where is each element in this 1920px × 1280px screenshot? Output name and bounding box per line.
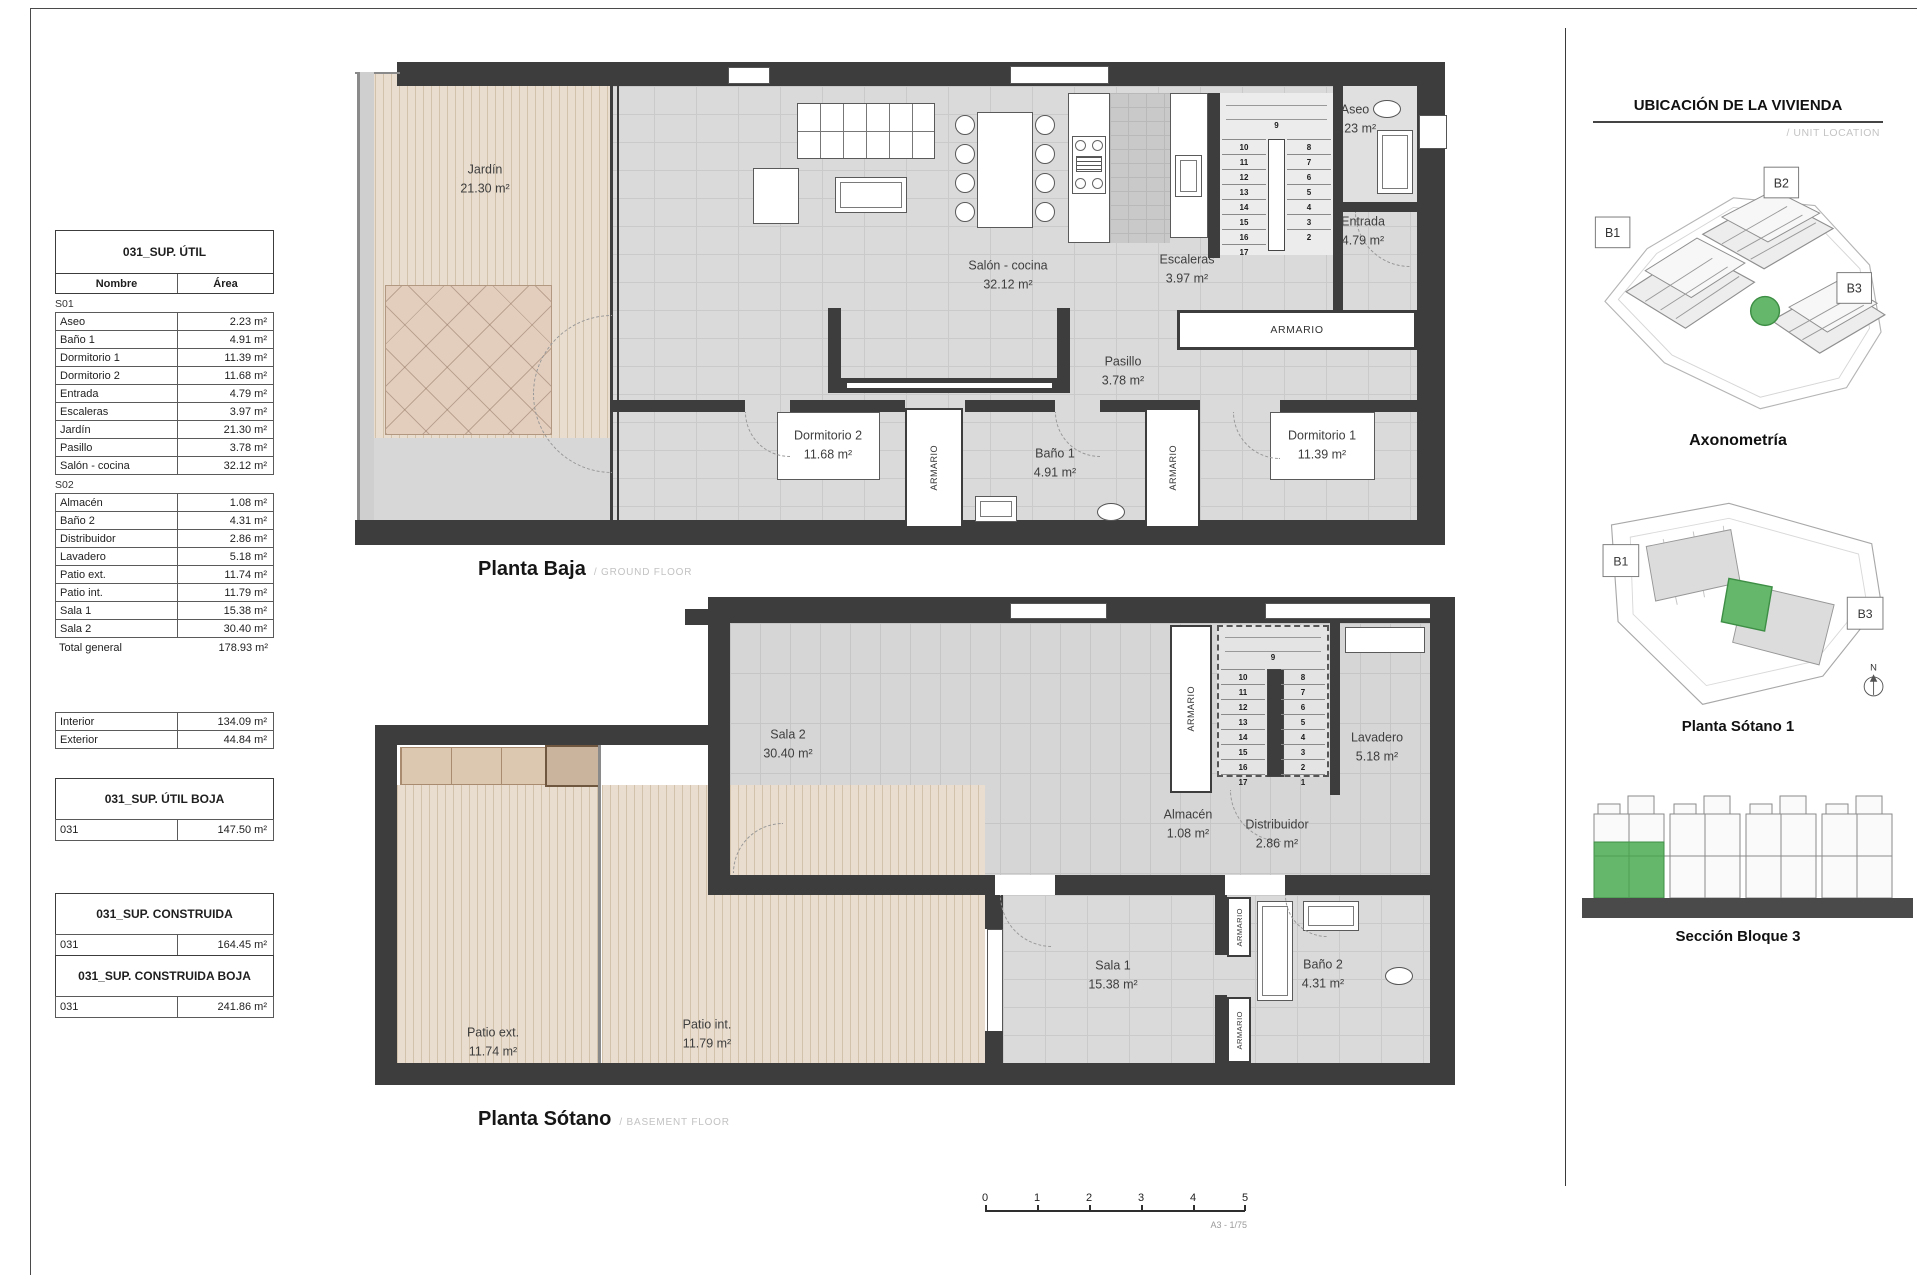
wall-segment [1215,995,1227,1063]
room-label-dormitorio1: Dormitorio 111.39 m² [1288,427,1356,466]
coffee-table [835,177,907,213]
patio-divider [598,745,601,1063]
section-drawing [1580,786,1915,922]
armchair [753,168,799,224]
chair-icon [1035,173,1055,193]
scale-tick [1141,1205,1143,1211]
room-label-escaleras: Escaleras3.97 m² [1160,251,1215,290]
wall-segment [375,725,708,745]
table-row: 031147.50 m² [55,819,274,841]
armario-label: ARMARIO [1235,908,1244,947]
table-row: 031164.45 m² [55,934,274,956]
jardin-pergola [385,285,552,435]
wall-segment [375,1063,1455,1085]
chair-icon [955,115,975,135]
window [1010,66,1109,84]
armario-closet: ARMARIO [1227,997,1251,1063]
table-row: Interior134.09 m² [55,712,274,731]
room-label-sala1: Sala 115.38 m² [1088,957,1137,996]
section-caption: Sección Bloque 3 [1593,928,1883,945]
room-label-distribuidor: Distribuidor2.86 m² [1245,816,1308,855]
wall-segment [612,400,745,412]
table-row: Distribuidor2.86 m² [55,529,274,548]
armario-closet: ARMARIO [1170,625,1212,793]
stair-tread [1226,105,1327,106]
table-row: Sala 230.40 m² [55,619,274,638]
planter-box [545,745,600,787]
table-row: Exterior44.84 m² [55,730,274,749]
basement-floor-subtitle: / BASEMENT FLOOR [619,1117,729,1128]
room-label-pasillo: Pasillo3.78 m² [1102,353,1144,392]
stair-tread [1226,119,1327,120]
chair-icon [955,144,975,164]
wall-segment [1208,93,1220,258]
stair-core-wall [1268,139,1285,251]
room-label-dormitorio2: Dormitorio 211.68 m² [794,427,862,466]
room-label-salon: Salón - cocina32.12 m² [968,257,1047,296]
room-label-patio-int: Patio int.11.79 m² [683,1016,732,1055]
scale-bar: 0 1 2 3 4 5 A3 - 1/75 [985,1192,1247,1238]
scale-tick-label: 3 [1138,1192,1144,1204]
unit-highlight [1721,578,1772,631]
armario-label: ARMARIO [1270,324,1323,336]
toilet-icon [1373,100,1401,118]
table-interior-exterior: Interior134.09 m² Exterior44.84 m² [55,713,274,749]
patio-ext-deck [397,785,598,1063]
window [1265,603,1442,619]
wall-segment [355,520,1445,545]
room-label-bano1: Baño 14.91 m² [1034,445,1076,484]
panel-divider [1565,28,1566,1186]
ground-floor-title: Planta Baja/ GROUND FLOOR [478,558,692,581]
table-row: Patio ext.11.74 m² [55,565,274,584]
wall-segment [397,62,1445,86]
tv-console [847,383,1052,388]
table-row: Patio int.11.79 m² [55,583,274,602]
window [1010,603,1107,619]
scale-tick [985,1205,987,1211]
wall-segment [790,400,905,412]
room-label-almacen: Almacén1.08 m² [1164,806,1213,845]
dining-table [977,112,1033,228]
toilet-icon [1385,967,1413,985]
svg-text:B1: B1 [1613,554,1628,568]
planter-strip [360,72,374,520]
room-label-sala2: Sala 230.40 m² [763,726,812,765]
ground-floor-plan: ARMARIO ARMARIO ARMARIO 9 10111213141516… [355,60,1445,545]
table-title: 031_SUP. CONSTRUIDA [55,893,274,935]
armario-closet: ARMARIO [1145,408,1200,528]
col-nombre: Nombre [56,274,178,293]
table-row: Dormitorio 211.68 m² [55,366,274,385]
armario-label: ARMARIO [929,445,939,491]
room-label-lavadero: Lavadero5.18 m² [1351,729,1403,768]
table-row: Entrada4.79 m² [55,384,274,403]
axonometry-caption: Axonometría [1593,432,1883,450]
scale-line [985,1210,1245,1212]
stair-step-number: 9 [1219,653,1327,662]
table-row: Pasillo3.78 m² [55,438,274,457]
scale-tick-label: 4 [1190,1192,1196,1204]
table-row: Jardín21.30 m² [55,420,274,439]
wall-segment [1340,202,1417,212]
unit-highlight [1751,297,1780,326]
stair-numbers-right: 87654321 [1281,669,1325,789]
block-label-b1: B1 [1595,217,1630,248]
grill [1076,156,1102,172]
ground-floor-subtitle: / GROUND FLOOR [594,567,692,578]
svg-text:B2: B2 [1774,176,1789,190]
block-label-b3: B3 [1837,273,1872,304]
basement-floor-title: Planta Sótano/ BASEMENT FLOOR [478,1108,730,1131]
axonometry-drawing: B1 B2 B3 [1588,148,1898,426]
laundry-counter [1345,627,1425,653]
table-title: 031_SUP. CONSTRUIDA BOJA [55,955,274,997]
section-label-s02: S02 [55,475,274,494]
burner-icon [1075,178,1086,189]
room-label-aseo: Aseo2.23 m² [1334,101,1376,140]
room-label-bano2: Baño 24.31 m² [1302,956,1344,995]
svg-text:N: N [1870,662,1877,673]
wall-segment [1280,400,1417,412]
wall-segment [1055,875,1225,895]
table-row: Dormitorio 111.39 m² [55,348,274,367]
scale-tick [1244,1205,1246,1211]
wall-segment [1215,895,1227,955]
toilet-icon [1097,503,1125,521]
armario-closet: ARMARIO [1177,310,1417,350]
chair-icon [1035,202,1055,222]
folding-door [987,929,1003,1033]
table-row: Baño 14.91 m² [55,330,274,349]
patio-int-deck [602,785,985,1063]
wall-segment [685,609,710,625]
stair-numbers-left: 1011121314151617 [1221,669,1265,789]
armario-closet: ARMARIO [905,408,963,528]
burner-icon [1092,178,1103,189]
scale-tick-label: 2 [1086,1192,1092,1204]
scale-tick [1089,1205,1091,1211]
location-subheader: / UNIT LOCATION [1593,127,1880,139]
scale-tick-label: 1 [1034,1192,1040,1204]
block-label-b3: B3 [1847,597,1883,629]
room-label-entrada: Entrada4.79 m² [1341,213,1385,252]
wall-segment [1285,875,1430,895]
room-label-patio-ext: Patio ext.11.74 m² [467,1024,519,1063]
scale-tick-label: 5 [1242,1192,1248,1204]
table-header: Nombre Área [55,274,274,294]
chair-icon [1035,115,1055,135]
stair-tread [1225,637,1321,638]
drawing-sheet: 031_SUP. ÚTIL Nombre Área S01 Aseo2.23 m… [0,0,1920,1280]
table-row: Almacén1.08 m² [55,493,274,512]
wall-segment [730,875,995,895]
room-label-jardin: Jardín21.30 m² [460,161,509,200]
siteplan-drawing: B1 B3 N [1588,492,1898,710]
basement-floor-plan: ARMARIO ARMARIO ARMARIO 9 10111213141516… [355,595,1470,1087]
block-label-b2: B2 [1764,167,1799,198]
stairs-basement: 9 1011121314151617 87654321 [1217,625,1329,777]
scale-tick-label: 0 [982,1192,988,1204]
stair-numbers-right: 8765432 [1287,139,1331,244]
wall-segment [375,725,397,1083]
table-sup-util: 031_SUP. ÚTIL Nombre Área S01 Aseo2.23 m… [55,230,274,657]
block-label-b1: B1 [1603,545,1639,577]
table-title: 031_SUP. ÚTIL BOJA [55,778,274,820]
section-unit-highlight [1594,842,1664,898]
scale-tick [1193,1205,1195,1211]
table-row: Escaleras3.97 m² [55,402,274,421]
section-label-s01: S01 [55,294,274,313]
glass-wall [617,76,619,520]
bathroom-sink [975,496,1017,522]
wall-segment [965,400,1055,412]
armario-label: ARMARIO [1168,445,1178,491]
location-header: UBICACIÓN DE LA VIVIENDA [1593,97,1883,114]
wall-segment [1330,623,1340,795]
sofa [797,103,935,159]
svg-text:B1: B1 [1605,226,1620,240]
burner-icon [1075,140,1086,151]
table-row: 031241.86 m² [55,996,274,1018]
scale-tick [1037,1205,1039,1211]
bathtub [1257,901,1293,1001]
kitchen-sink [1175,155,1202,197]
kitchen-backsplash [1110,93,1170,243]
table-sup-construida: 031_SUP. CONSTRUIDA 031164.45 m² 031_SUP… [55,893,274,1018]
table-row: Baño 24.31 m² [55,511,274,530]
stairs-ground: 9 1011121314151617 8765432 [1220,93,1333,255]
stair-tread [1225,651,1321,652]
wall-segment [708,597,730,895]
armario-closet: ARMARIO [1227,897,1251,957]
north-compass-icon: N [1864,662,1883,696]
col-area: Área [178,274,273,293]
table-row: Lavadero5.18 m² [55,547,274,566]
svg-text:B3: B3 [1858,607,1873,621]
window [728,67,770,84]
wall-segment [1430,597,1455,1085]
svg-text:B3: B3 [1847,282,1862,296]
table-total-row: Total general178.93 m² [55,638,274,657]
table-sup-util-boja: 031_SUP. ÚTIL BOJA 031147.50 m² [55,778,274,841]
location-header-rule [1593,121,1883,123]
entry-door [1419,115,1447,149]
chair-icon [955,173,975,193]
stair-numbers-left: 1011121314151617 [1222,139,1266,259]
table-row: Aseo2.23 m² [55,312,274,331]
wall-segment [985,1031,1003,1063]
shower [1377,130,1413,194]
table-title: 031_SUP. ÚTIL [55,230,274,274]
stair-step-number: 9 [1220,121,1333,130]
chair-icon [1035,144,1055,164]
section-ground [1582,898,1913,918]
burner-icon [1092,140,1103,151]
armario-label: ARMARIO [1235,1011,1244,1050]
chair-icon [955,202,975,222]
table-row: Sala 115.38 m² [55,601,274,620]
scale-note: A3 - 1/75 [1210,1220,1247,1230]
armario-label: ARMARIO [1186,686,1196,732]
table-row: Salón - cocina32.12 m² [55,456,274,475]
siteplan-caption: Planta Sótano 1 [1593,718,1883,735]
